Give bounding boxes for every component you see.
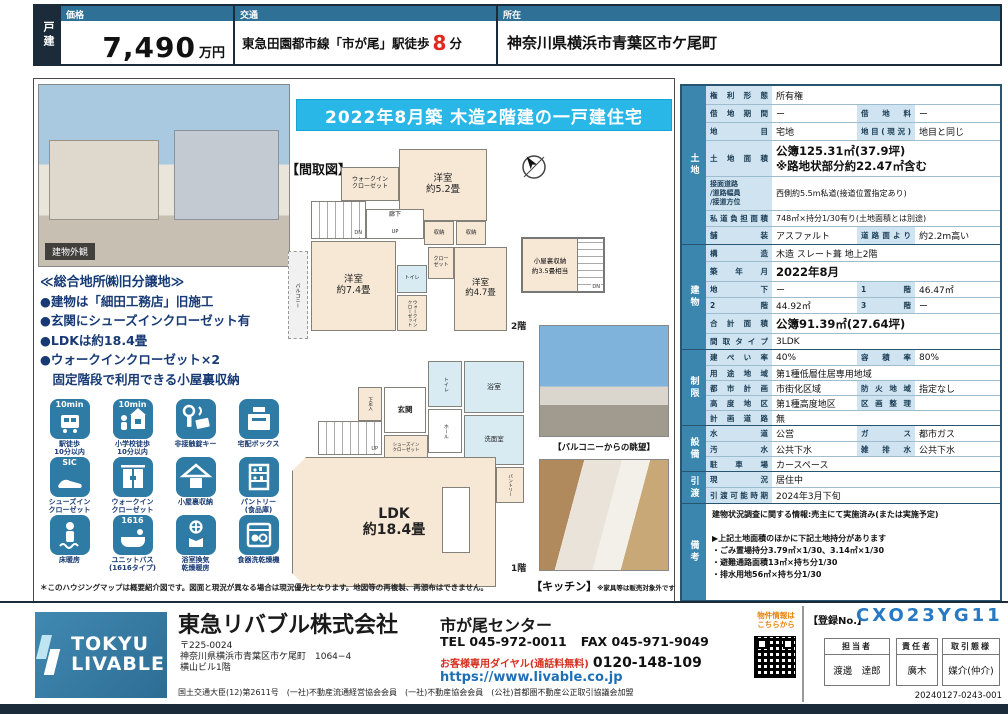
logo-mark-icon [37, 635, 63, 675]
access-line: 東急田園都市線「市が尾」駅徒歩 [242, 33, 430, 52]
access-minutes: 8 [433, 31, 447, 55]
tokyu-livable-logo: TOKYU LIVABLE [35, 612, 167, 698]
highlight-item: ●玄関にシューズインクローゼット有 [40, 311, 292, 330]
feature-label: 宅配ボックス [238, 440, 280, 448]
balcony-photo-caption: 【バルコニーからの眺望】 [532, 441, 676, 453]
spec-value: 40% [772, 350, 857, 365]
notes-text: 建物状況調査に関する情報:売主にて実施済み(または実施予定) ▶上記土地面積のほ… [706, 504, 1000, 600]
icon-badge: 1616 [113, 516, 153, 525]
spec-label: 水道 [706, 426, 772, 441]
spec-value: 都市ガス [915, 426, 1000, 441]
location-value: 神奈川県横浜市青葉区市ケ尾町 [498, 21, 1000, 64]
row-ownership: 権利形態 所有権 [706, 86, 1000, 104]
row-height-district: 高度地区 第1種高度地区 区画整理 [706, 395, 1000, 410]
section-land: 土地 権利形態 所有権 借地期間 ー 借地料 ー 地目 宅地 地目(現況) 地目… [682, 86, 1000, 244]
deal-type-value: 媒介(仲介) [943, 655, 999, 685]
logo-line1: TOKYU [71, 635, 165, 655]
section-handover-title: 引渡 [682, 472, 706, 503]
feature-delivery-box: 宅配ボックス [227, 399, 290, 457]
stairs-up-label: UP [392, 230, 399, 236]
spec-value: 西側約5.5m私道(接道位置指定あり) [772, 177, 1000, 210]
spec-value: 2022年8月 [772, 262, 1000, 281]
property-type-label: 戸建 [35, 6, 61, 64]
feature-bath-dryer: 浴室換気 乾燥暖房 [164, 515, 227, 573]
feature-label: ユニットバス (1616タイプ) [109, 556, 156, 573]
staff-box: 担当者 渡邊 達郎 [824, 638, 890, 686]
feature-label: 食器洗乾燥機 [238, 556, 280, 564]
spec-label: 道路面より [857, 227, 915, 244]
room-bedroom-4-7: 洋室 約4.7畳 [454, 247, 507, 331]
feature-label: 非接触錠キー [175, 440, 217, 448]
spec-label: 駐車場 [706, 457, 772, 471]
spec-value: 公簿125.31㎡(37.9坪) ※路地状部分約22.47㎡含む [772, 141, 1000, 176]
feature-attic-storage: 小屋裏収納 [164, 457, 227, 515]
registration-no-value: CXO23YG11 [856, 605, 1003, 626]
hallway-2f: 廊下 UP [366, 209, 424, 239]
spec-value: 第1種高度地区 [772, 396, 857, 410]
row-current-status: 現況 居住中 [706, 472, 1000, 487]
spec-label: 地目 [706, 123, 772, 140]
feature-icon-grid: 10min 駅徒歩 10分以内 10min 小学校徒歩 10分以内 非接触錠キー [38, 399, 292, 573]
attic-storage-room: 小屋裏収納 約3.5畳相当 DN [521, 237, 605, 293]
spec-value: 地目と同じ [915, 123, 1000, 140]
feature-dishwasher: 食器洗乾燥機 [227, 515, 290, 573]
spec-label: 構造 [706, 245, 772, 261]
spec-value: カースペース [772, 457, 1000, 471]
spec-value: 46.47㎡ [915, 282, 1000, 297]
row-city-planning: 都市計画 市街化区域 防火地域 指定なし [706, 380, 1000, 395]
row-pavement: 舗装 アスファルト 道路面より 約2.2m高い [706, 226, 1000, 244]
price-amount: 7,490 [102, 31, 196, 64]
spec-label: 汚水 [706, 442, 772, 456]
row-zoning: 用途地域 第1種低層住居専用地域 [706, 365, 1000, 380]
deal-type-label: 取引態様 [943, 639, 999, 655]
qr-note: 物件情報は こちらから [752, 611, 800, 630]
tel-number: TEL 045-972-0011 [440, 634, 567, 649]
spec-label: 築年月 [706, 262, 772, 281]
company-name: 東急リバブル株式会社 [178, 607, 398, 639]
highlight-item: ●建物は「細田工務店」旧施工 [40, 292, 292, 311]
section-handover: 引渡 現況 居住中 引渡可能時期 2024年3月下旬 [682, 471, 1000, 503]
spec-label: 高度地区 [706, 396, 772, 410]
access-value: 東急田園都市線「市が尾」駅徒歩 8 分 [235, 21, 496, 64]
feature-unit-bath: 1616 ユニットバス (1616タイプ) [101, 515, 164, 573]
stairs-2f: DN [311, 201, 366, 239]
spec-value: アスファルト [772, 227, 857, 244]
room-pantry: パントリー [496, 467, 524, 503]
price-value: 7,490 万円 [61, 21, 233, 64]
feature-floor-heating: 床暖房 [38, 515, 101, 573]
highlight-item: ●LDKは約18.4畳 [40, 331, 292, 350]
row-basement-1f: 地下 ー 1階 46.47㎡ [706, 281, 1000, 297]
row-private-road: 私道負担面積 748㎡×持分1/30有り(土地面積とは別途) [706, 210, 1000, 226]
exterior-house-shape [49, 140, 159, 220]
feature-pantry: パントリー (食品庫) [227, 457, 290, 515]
spec-value: 公共下水 [772, 442, 857, 456]
stairs-up-label: UP [370, 447, 379, 453]
kitchen-caption-title: 【キッチン】 [531, 580, 597, 593]
spec-value: 居住中 [772, 472, 1000, 487]
deal-type-box: 取引態様 媒介(仲介) [942, 638, 1000, 686]
feature-school-walk: 10min 小学校徒歩 10分以内 [101, 399, 164, 457]
row-coverage: 建ぺい率 40% 容積率 80% [706, 350, 1000, 365]
feature-label: 駅徒歩 10分以内 [54, 440, 85, 457]
exterior-photo-label: 建物外観 [45, 243, 95, 260]
room-closet: クロー ゼット [428, 247, 454, 279]
section-notes: 備考 建物状況調査に関する情報:売主にて実施済み(または実施予定) ▶上記土地面… [682, 503, 1000, 600]
catch-banner: 2022年8月築 木造2階建の一戸建住宅 [296, 99, 672, 131]
section-building-title: 建物 [682, 245, 706, 349]
row-sewage: 汚水 公共下水 雑排水 公共下水 [706, 441, 1000, 456]
spec-value: 80% [915, 350, 1000, 365]
spec-label: 舗装 [706, 227, 772, 244]
logo-text: TOKYU LIVABLE [71, 635, 165, 675]
spec-value: 約2.2m高い [915, 227, 1000, 244]
icon-badge: 10min [50, 400, 90, 409]
shoe-closet-icon: SIC [50, 457, 90, 497]
room-walk-in-closet-2: ウォークイン クローゼット [397, 295, 427, 331]
floor-2-label: 2階 [511, 319, 526, 332]
fax-number: FAX 045-971-9049 [581, 634, 709, 649]
pantry-icon [239, 457, 279, 497]
location-caption: 所在 [498, 6, 1000, 21]
spec-value: ー [772, 282, 857, 297]
highlights-block: ≪総合地所㈱旧分譲地≫ ●建物は「細田工務店」旧施工 ●玄関にシューズインクロー… [40, 271, 292, 389]
spec-label: 区画整理 [857, 396, 915, 410]
spec-label: 私道負担面積 [706, 211, 772, 226]
section-equipment: 設備 水道 公営 ガス 都市ガス 汚水 公共下水 雑排水 公共下水 駐車場 カー… [682, 425, 1000, 471]
customer-dial-line: お客様専用ダイヤル(通話料無料)0120-148-109 [440, 652, 702, 671]
spec-value [915, 396, 1000, 410]
logo-line2: LIVABLE [71, 655, 165, 675]
balcony-view-photo [539, 325, 669, 437]
section-building: 建物 構造 木造 スレート葺 地上2階 築年月 2022年8月 地下 ー 1階 … [682, 244, 1000, 349]
spec-label: 雑排水 [857, 442, 915, 456]
website-link[interactable]: https://www.livable.co.jp [440, 670, 623, 685]
header-bar: 戸建 価格 7,490 万円 交通 東急田園都市線「市が尾」駅徒歩 8 分 所在… [33, 4, 1002, 66]
price-column: 価格 7,490 万円 [61, 6, 233, 64]
spec-label: 現況 [706, 472, 772, 487]
spec-value: 公簿91.39㎡(27.64坪) [772, 314, 1000, 333]
row-parking: 駐車場 カースペース [706, 456, 1000, 471]
spec-value: ー [915, 298, 1000, 313]
row-handover-date: 引渡可能時期 2024年3月下旬 [706, 487, 1000, 503]
manager-name: 廣木 [897, 655, 937, 685]
room-storage: 収納 [456, 221, 486, 245]
exterior-photo: 建物外観 [38, 84, 290, 267]
floor-1-label: 1階 [511, 561, 526, 574]
price-caption: 価格 [61, 6, 233, 21]
address-line2: 横山ビル1階 [180, 660, 231, 673]
spec-value: 市街化区域 [772, 381, 857, 395]
hallway-label: 廊下 [389, 212, 401, 219]
room-toilet-2f: トイレ [397, 265, 427, 293]
section-land-title: 土地 [682, 86, 706, 244]
bath-dryer-icon [176, 515, 216, 555]
compass-icon [518, 151, 550, 183]
spec-label: 防火地域 [857, 381, 915, 395]
spec-value: 第1種低層住居専用地域 [772, 366, 1000, 380]
feature-walk-in-closet: ウォークイン クローゼット [101, 457, 164, 515]
manager-box: 責任者 廣木 [896, 638, 938, 686]
feature-label: 浴室換気 乾燥暖房 [182, 556, 210, 573]
spec-label: 間取タイプ [706, 334, 772, 349]
row-land-category: 地目 宅地 地目(現況) 地目と同じ [706, 122, 1000, 140]
feature-station-walk: 10min 駅徒歩 10分以内 [38, 399, 101, 457]
section-restriction: 制限 建ぺい率 40% 容積率 80% 用途地域 第1種低層住居専用地域 都市計… [682, 349, 1000, 425]
spec-label: 用途地域 [706, 366, 772, 380]
spec-value: 所有権 [772, 86, 1000, 104]
spec-table: 土地 権利形態 所有権 借地期間 ー 借地料 ー 地目 宅地 地目(現況) 地目… [680, 84, 1002, 602]
spec-value: 2024年3月下旬 [772, 488, 1000, 503]
spec-label: 容積率 [857, 350, 915, 365]
spec-value: 44.92㎡ [772, 298, 857, 313]
spec-value: 公共下水 [915, 442, 1000, 456]
feature-label: パントリー (食品庫) [241, 498, 276, 515]
access-unit: 分 [449, 33, 462, 52]
dial-label: お客様専用ダイヤル(通話料無料) [440, 659, 589, 670]
price-unit: 万円 [199, 42, 225, 61]
manager-label: 責任者 [897, 639, 937, 655]
school-icon: 10min [113, 399, 153, 439]
spec-label: 接面道路 /道路幅員 /接道方位 [706, 177, 772, 210]
spec-value: 748㎡×持分1/30有り(土地面積とは別途) [772, 211, 1000, 226]
branch-name: 市が尾センター [440, 612, 552, 636]
map-disclaimer: ＊このハウジングマップは概要紹介図です。図面と現況が異なる場合は現況優先となりま… [40, 582, 530, 593]
spec-label: 地下 [706, 282, 772, 297]
row-road: 接面道路 /道路幅員 /接道方位 西側約5.5m私道(接道位置指定あり) [706, 176, 1000, 210]
icon-badge: 10min [113, 400, 153, 409]
access-caption: 交通 [235, 6, 496, 21]
room-storage: 収納 [424, 221, 454, 245]
row-layout-type: 間取タイプ 3LDK [706, 333, 1000, 349]
spec-label: 借地期間 [706, 105, 772, 122]
spec-label: 2階 [706, 298, 772, 313]
document-number: 20240127-0243-001 [814, 691, 1002, 701]
train-icon: 10min [50, 399, 90, 439]
spec-value: 無 [772, 411, 1000, 425]
spec-value: 3LDK [772, 334, 1000, 349]
feature-contactless-key: 非接触錠キー [164, 399, 227, 457]
attic-stairs: DN [577, 239, 603, 291]
stairs-down-label: DN [591, 284, 601, 290]
room-hall-1f: ホール [428, 409, 462, 453]
stairs-down-label: DN [353, 231, 363, 237]
spec-label: 土地面積 [706, 141, 772, 176]
spec-value: ー [915, 105, 1000, 122]
spec-value: 木造 スレート葺 地上2階 [772, 245, 1000, 261]
row-2f-3f: 2階 44.92㎡ 3階 ー [706, 297, 1000, 313]
attic-storage-icon [176, 457, 216, 497]
row-planned-road: 計画道路 無 [706, 410, 1000, 425]
kitchen-caption-note: ※家具等は販売対象外です [597, 584, 675, 592]
spec-label: 権利形態 [706, 86, 772, 104]
row-land-area: 土地面積 公簿125.31㎡(37.9坪) ※路地状部分約22.47㎡含む [706, 140, 1000, 176]
room-bath: 浴室 [464, 361, 524, 413]
row-structure: 構造 木造 スレート葺 地上2階 [706, 245, 1000, 261]
row-built-date: 築年月 2022年8月 [706, 261, 1000, 281]
spec-label: 3階 [857, 298, 915, 313]
icon-badge: SIC [50, 458, 90, 467]
spec-value: 公営 [772, 426, 857, 441]
spec-label: 計画道路 [706, 411, 772, 425]
row-water-gas: 水道 公営 ガス 都市ガス [706, 426, 1000, 441]
row-total-area: 合計面積 公簿91.39㎡(27.64坪) [706, 313, 1000, 333]
feature-label: ウォークイン クローゼット [112, 498, 154, 515]
walk-in-closet-icon [113, 457, 153, 497]
bottom-bar [0, 704, 1008, 714]
qr-code [754, 636, 796, 678]
spec-label: 引渡可能時期 [706, 488, 772, 503]
dial-number: 0120-148-109 [593, 655, 702, 671]
location-column: 所在 神奈川県横浜市青葉区市ケ尾町 [496, 6, 1000, 64]
access-column: 交通 東急田園都市線「市が尾」駅徒歩 8 分 [233, 6, 496, 64]
feature-shoe-closet: SIC シューズイン クローゼット [38, 457, 101, 515]
key-icon [176, 399, 216, 439]
kitchen-photo [539, 459, 669, 571]
row-lease: 借地期間 ー 借地料 ー [706, 104, 1000, 122]
spec-label: 建ぺい率 [706, 350, 772, 365]
exterior-house-shape [174, 130, 279, 220]
floorplan-1f: トイレ 浴室 下足入 玄関 ホール 洗面室 UP シューズイン クローゼット パ… [292, 361, 527, 587]
room-walk-in-closet: ウォークイン クローゼット [341, 167, 399, 201]
room-toilet-1f: トイレ [428, 361, 462, 407]
attic-room-label: 小屋裏収納 約3.5畳相当 [523, 239, 577, 291]
delivery-box-icon [239, 399, 279, 439]
highlight-item: 固定階段で利用できる小屋裏収納 [40, 370, 292, 389]
kitchen-counter [442, 487, 470, 553]
room-bedroom-7-4: 洋室 約7.4畳 [311, 241, 396, 331]
tel-fax-line: TEL 045-972-0011FAX 045-971-9049 [440, 634, 709, 649]
room-genkan: 玄関 [384, 387, 426, 433]
spec-label: 都市計画 [706, 381, 772, 395]
flyer-page: 戸建 価格 7,490 万円 交通 東急田園都市線「市が尾」駅徒歩 8 分 所在… [0, 0, 1008, 714]
highlights-title: ≪総合地所㈱旧分譲地≫ [40, 271, 292, 290]
unit-bath-icon: 1616 [113, 515, 153, 555]
dishwasher-icon [239, 515, 279, 555]
staff-name: 渡邊 達郎 [825, 655, 889, 685]
feature-label: シューズイン クローゼット [49, 498, 91, 515]
spec-value: 宅地 [772, 123, 857, 140]
spec-label: 借地料 [857, 105, 915, 122]
staff-label: 担当者 [825, 639, 889, 655]
spec-value: 指定なし [915, 381, 1000, 395]
section-restriction-title: 制限 [682, 350, 706, 425]
feature-label: 小学校徒歩 10分以内 [115, 440, 150, 457]
room-shoebox: 下足入 [358, 387, 382, 421]
kitchen-photo-caption: 【キッチン】※家具等は販売対象外です [530, 575, 676, 594]
spec-label: 1階 [857, 282, 915, 297]
footer-divider [0, 601, 1008, 603]
license-line: 国土交通大臣(12)第2611号 (一社)不動産流通経営協会会員 (一社)不動産… [178, 687, 796, 698]
content-box: 建物外観 2022年8月築 木造2階建の一戸建住宅 【間取図】 ≪総合地所㈱旧分… [33, 78, 675, 602]
highlight-item: ●ウォークインクローゼット×2 [40, 350, 292, 369]
room-balcony: バルコニー [288, 251, 308, 339]
spec-value: ー [772, 105, 857, 122]
floor-heating-icon [50, 515, 90, 555]
section-equipment-title: 設備 [682, 426, 706, 471]
spec-label: ガス [857, 426, 915, 441]
footer-vertical-divider [802, 606, 804, 702]
feature-label: 床暖房 [59, 556, 80, 564]
stairs-1f: UP [318, 421, 382, 455]
spec-label: 合計面積 [706, 314, 772, 333]
spec-label: 地目(現況) [857, 123, 915, 140]
floorplan-2f: 洋室 約5.2畳 ウォークイン クローゼット DN 廊下 UP 収納 収納 洋室… [311, 149, 507, 331]
section-notes-title: 備考 [682, 504, 706, 600]
feature-label: 小屋裏収納 [178, 498, 213, 506]
